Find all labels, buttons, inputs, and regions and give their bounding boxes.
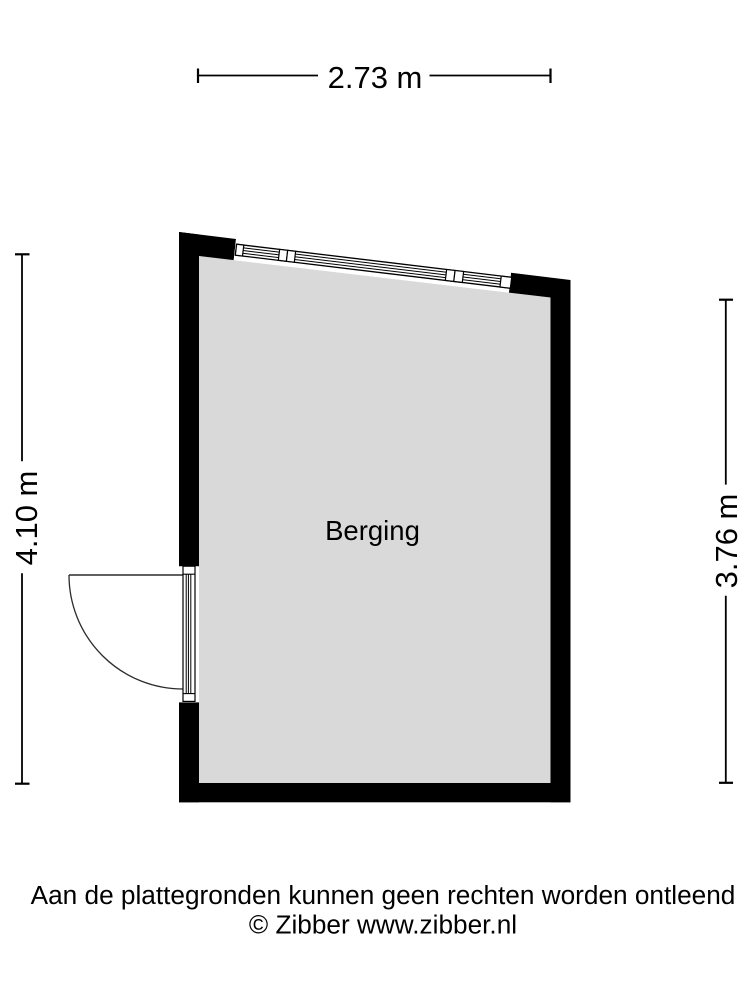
svg-text:© Zibber www.zibber.nl: © Zibber www.zibber.nl bbox=[249, 910, 517, 940]
svg-text:4.10 m: 4.10 m bbox=[9, 471, 44, 566]
svg-text:Aan de plattegronden kunnen ge: Aan de plattegronden kunnen geen rechten… bbox=[31, 880, 736, 910]
svg-text:Berging: Berging bbox=[325, 515, 420, 546]
svg-text:3.76 m: 3.76 m bbox=[709, 494, 744, 589]
svg-text:2.73 m: 2.73 m bbox=[328, 60, 423, 95]
